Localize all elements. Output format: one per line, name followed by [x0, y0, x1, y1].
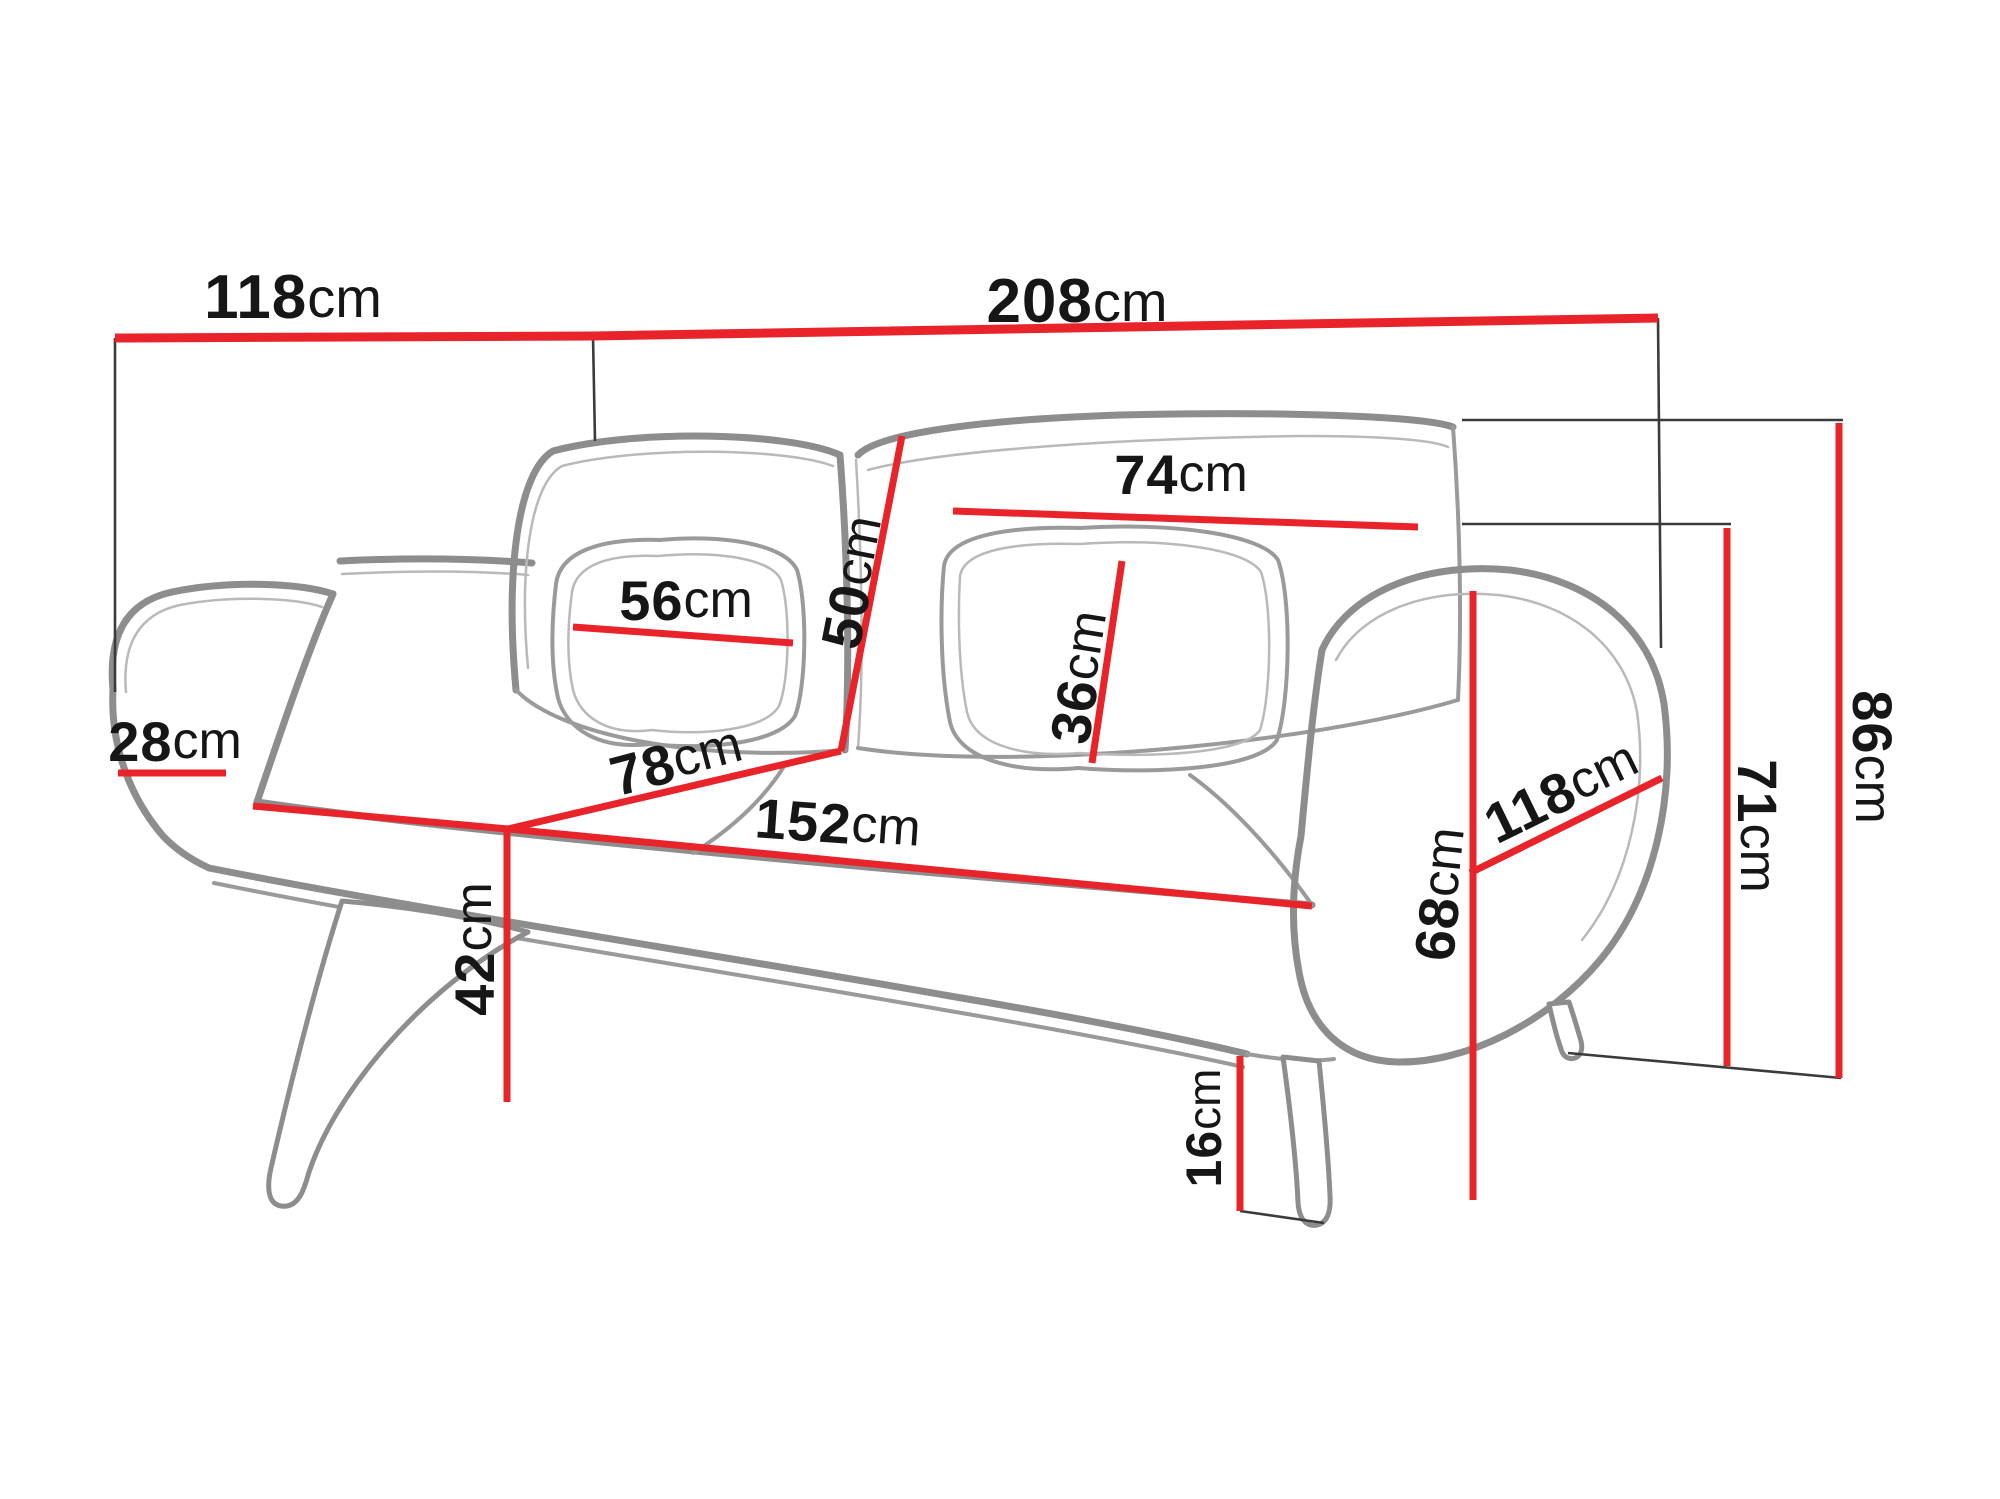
sofa-back-panel-edge — [340, 559, 532, 563]
right-armrest-outline — [1293, 569, 1667, 1062]
label-armrest-width: 28cm — [108, 710, 242, 773]
dim-line-back-cushion-width — [953, 511, 1418, 527]
label-pillow-width: 56cm — [619, 569, 753, 632]
diagram-canvas: 118cm 208cm 74cm 56cm 50cm 36cm 28cm 78c… — [0, 0, 2000, 1499]
label-seat-width: 152cm — [753, 786, 923, 860]
label-back-cushion-height: 50cm — [808, 510, 895, 653]
front-right-leg — [1283, 1057, 1330, 1225]
label-leg-height: 16cm — [1176, 1069, 1232, 1188]
label-total-height: 86cm — [1842, 690, 1905, 824]
label-side-depth: 118cm — [1474, 727, 1648, 855]
right-pillow — [942, 526, 1288, 770]
label-seat-depth: 78cm — [603, 712, 748, 807]
left-armrest-top-inner — [125, 599, 322, 692]
label-total-width: 208cm — [986, 267, 1167, 336]
label-front-width: 118cm — [204, 263, 382, 332]
ext-line-width-junction — [593, 336, 595, 441]
label-pillow-height: 36cm — [1037, 606, 1120, 748]
sofa-dimension-diagram: 118cm 208cm 74cm 56cm 50cm 36cm 28cm 78c… — [0, 0, 2000, 1499]
label-armrest-height: 68cm — [1402, 824, 1479, 963]
label-back-height: 71cm — [1727, 759, 1790, 893]
right-pillow-inner — [959, 542, 1269, 755]
ext-line-ground — [1568, 1053, 1841, 1078]
label-back-cushion-width: 74cm — [1114, 443, 1248, 506]
rear-right-leg — [1549, 1002, 1582, 1059]
sofa-back-panel-edge-inner — [342, 571, 528, 575]
left-armrest-inner-edge — [257, 594, 333, 802]
label-seat-height: 42cm — [443, 882, 506, 1016]
ext-line-right — [1658, 318, 1661, 648]
sofa-right-back-cushion-right-edge — [1453, 427, 1460, 700]
